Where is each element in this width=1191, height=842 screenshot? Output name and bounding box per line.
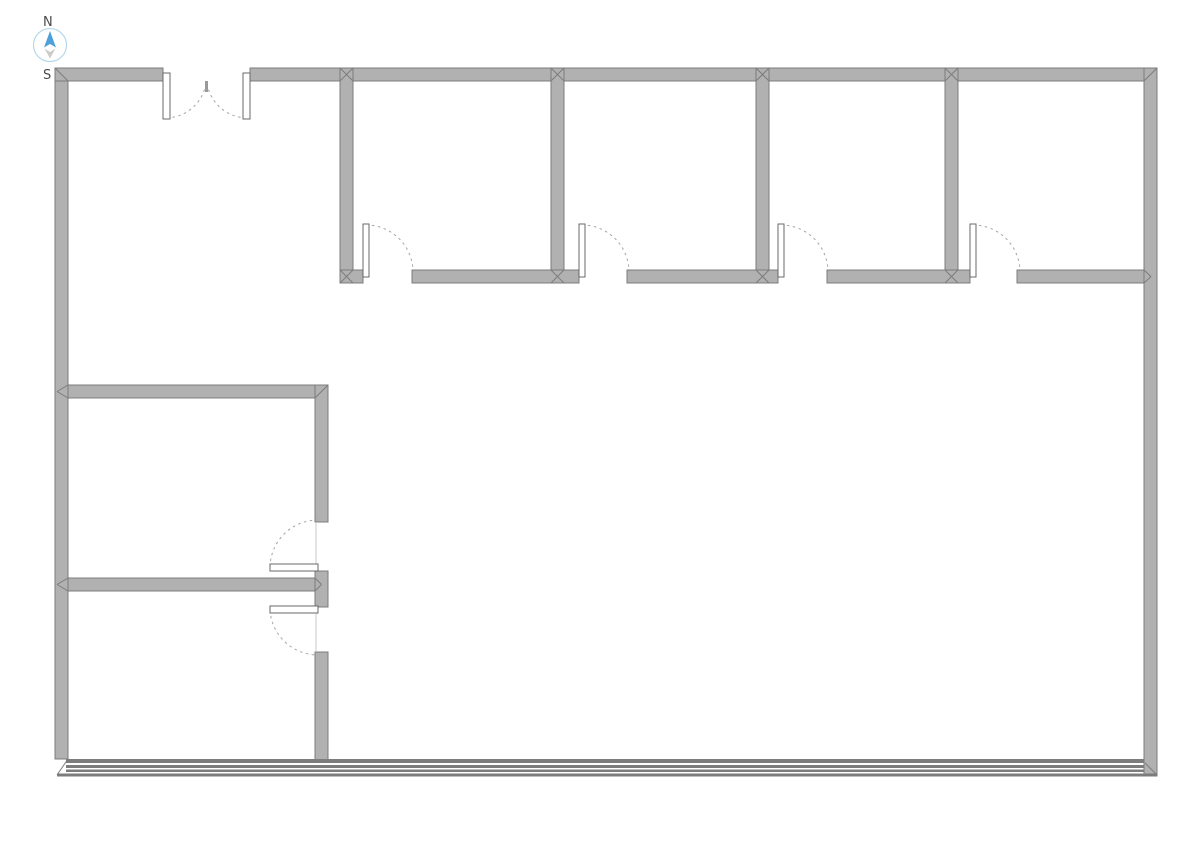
door-panel[interactable] [270,564,318,571]
west-exterior-wall[interactable] [55,68,68,759]
top-rooms-divider-2[interactable] [756,68,769,283]
left-rooms-east-wall-upper[interactable] [315,385,328,522]
door-panel[interactable] [270,606,318,613]
door-panel[interactable] [778,224,784,277]
left-rooms-divider-wall[interactable] [68,578,315,591]
walls-layer [55,68,1157,776]
window-wall-line [57,774,1157,777]
east-exterior-wall[interactable] [1144,68,1157,776]
top-room-4-door[interactable] [970,224,1020,277]
top-rooms-south-wall-e[interactable] [1017,270,1144,283]
floor-plan-viewport: N S [0,0,1191,842]
double-door-meeting-marker [205,81,208,92]
door-panel[interactable] [970,224,976,277]
window-wall-line [66,770,1144,773]
top-rooms-south-wall-b[interactable] [412,270,579,283]
floor-plan-canvas[interactable]: N S [0,0,1191,842]
door-swing-arc [270,610,318,655]
door-panel[interactable] [243,73,250,119]
top-room-3-door[interactable] [778,224,828,277]
left-rooms-east-wall-lower[interactable] [315,652,328,760]
door-swing-arc [207,83,247,118]
compass-south-label: S [43,68,51,83]
compass-north-label: N [43,15,53,30]
left-room-north-wall[interactable] [68,385,328,398]
door-panel[interactable] [163,73,170,119]
door-swing-arc [582,225,629,272]
door-swing-arc [366,225,413,272]
wall-miter-joints [55,68,1157,775]
left-upper-room-door[interactable] [270,520,318,571]
north-wall-main-segment[interactable] [250,68,1157,81]
door-swing-arc [973,225,1020,272]
south-window-wall[interactable] [57,759,1157,777]
top-room-1-door[interactable] [363,224,413,277]
top-room-2-door[interactable] [579,224,629,277]
top-rooms-south-wall-c[interactable] [627,270,778,283]
top-rooms-end-wall[interactable] [340,68,353,283]
left-lower-room-door[interactable] [270,606,318,655]
top-rooms-divider-1[interactable] [551,68,564,283]
top-rooms-divider-3[interactable] [945,68,958,283]
door-swing-arc [781,225,828,272]
door-panel[interactable] [363,224,369,277]
north-wall-left-segment[interactable] [55,68,163,81]
door-swing-arc [167,83,207,118]
entrance-double-door-right-leaf[interactable] [207,73,250,119]
top-rooms-south-wall-d[interactable] [827,270,970,283]
door-swing-arc [270,520,318,567]
compass-rose-icon[interactable] [34,29,67,62]
window-wall-line [66,759,1144,763]
doors-layer [163,73,1020,655]
entrance-double-door-left-leaf[interactable] [163,73,206,119]
window-wall-line [66,765,1144,768]
door-panel[interactable] [579,224,585,277]
